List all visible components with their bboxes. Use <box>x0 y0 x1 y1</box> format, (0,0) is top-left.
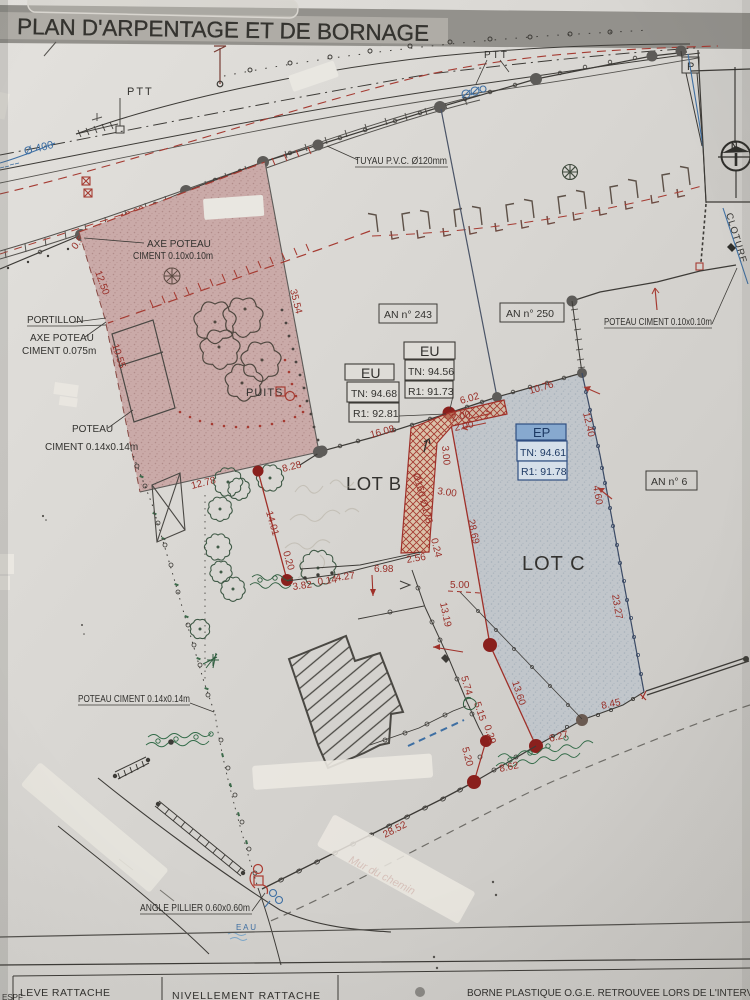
svg-text:PTT: PTT <box>484 50 509 61</box>
svg-text:R1: 91.78: R1: 91.78 <box>521 466 567 478</box>
svg-text:EU: EU <box>420 343 439 359</box>
svg-text:PORTILLON: PORTILLON <box>27 315 84 326</box>
svg-text:EU: EU <box>361 365 380 381</box>
svg-text:PUITS: PUITS <box>246 387 283 399</box>
svg-text:POTEAU CIMENT 0.14x0.14m: POTEAU CIMENT 0.14x0.14m <box>78 694 190 705</box>
svg-text:POTEAU: POTEAU <box>72 424 113 435</box>
svg-text:LEVE RATTACHE: LEVE RATTACHE <box>20 987 110 999</box>
svg-text:ANGLE PILLIER 0.60x0.60m: ANGLE PILLIER 0.60x0.60m <box>140 903 250 914</box>
svg-text:R1: 92.81: R1: 92.81 <box>353 408 399 420</box>
svg-text:CIMENT 0.14x0.14m: CIMENT 0.14x0.14m <box>45 442 138 453</box>
svg-text:LOT C: LOT C <box>522 553 586 575</box>
svg-text:6.98: 6.98 <box>374 564 394 575</box>
svg-text:CIMENT 0.075m: CIMENT 0.075m <box>22 346 96 357</box>
svg-text:AN n° 6: AN n° 6 <box>651 476 687 488</box>
svg-text:N: N <box>731 141 738 151</box>
svg-text:BORNE PLASTIQUE O.G.E. RETROUV: BORNE PLASTIQUE O.G.E. RETROUVEE LORS DE… <box>467 988 750 999</box>
svg-text:PTT: PTT <box>127 86 154 98</box>
svg-text:AN n° 250: AN n° 250 <box>506 308 554 320</box>
svg-text:CIMENT 0.10x0.10m: CIMENT 0.10x0.10m <box>133 251 213 262</box>
svg-text:TN: 94.61: TN: 94.61 <box>520 447 566 459</box>
svg-text:E A U: E A U <box>236 923 256 932</box>
svg-text:TN: 94.56: TN: 94.56 <box>408 366 454 378</box>
svg-text:LOT B: LOT B <box>346 473 402 494</box>
svg-text:POTEAU CIMENT 0.10x0.10m: POTEAU CIMENT 0.10x0.10m <box>604 317 712 328</box>
svg-text:5.00: 5.00 <box>450 580 470 591</box>
svg-text:EP: EP <box>533 425 550 440</box>
svg-text:3.00: 3.00 <box>439 445 452 466</box>
svg-text:R1: 91.73: R1: 91.73 <box>408 386 454 398</box>
svg-text:AXE POTEAU: AXE POTEAU <box>147 239 211 250</box>
svg-text:AXE POTEAU: AXE POTEAU <box>30 333 94 344</box>
svg-text:AN n° 243: AN n° 243 <box>384 309 432 321</box>
svg-text:TUYAU P.V.C. Ø120mm: TUYAU P.V.C. Ø120mm <box>355 156 447 167</box>
svg-text:NIVELLEMENT RATTACHE: NIVELLEMENT RATTACHE <box>172 990 320 1000</box>
svg-text:TN: 94.68: TN: 94.68 <box>351 388 397 400</box>
